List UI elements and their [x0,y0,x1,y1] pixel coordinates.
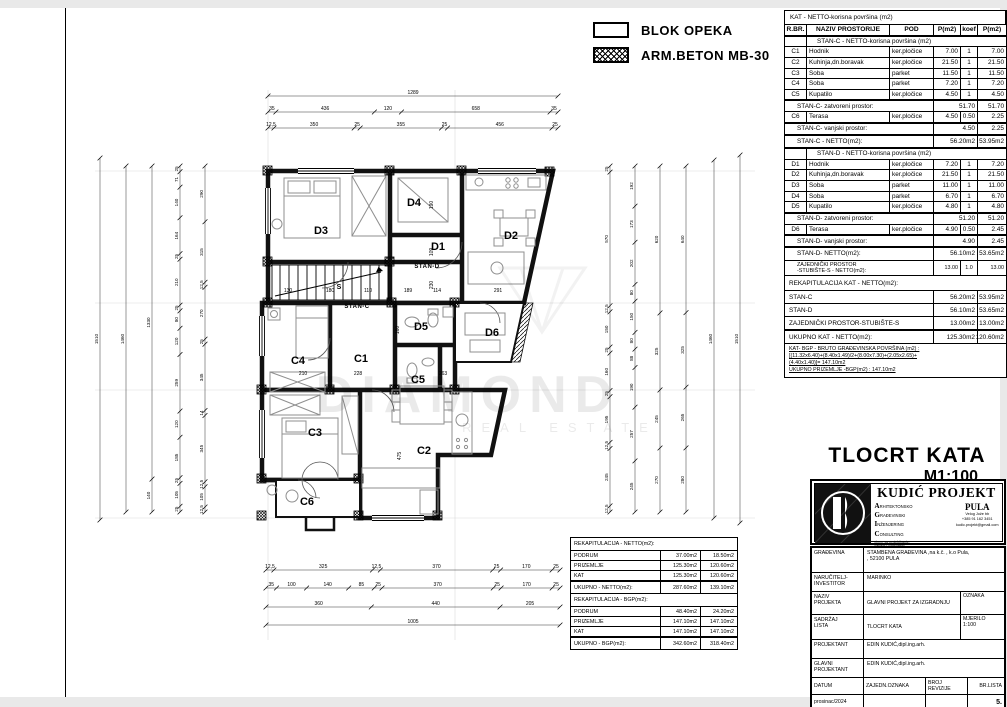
dim-value: 259 [174,379,179,387]
area-table-cell: Soba [807,69,890,80]
recap-cell: UKUPNO - NETTO(m2): [571,581,661,593]
dim-value: 440 [431,601,440,607]
field-value: STAMBENA GRAĐEVINA ,na k.č. , k.o Pula, … [864,548,1004,572]
dim-chain: 29031512,5270253451434512,510512,5 [199,164,207,515]
dim-value: 120 [174,420,179,428]
recap-cell: 147.10m2 [661,627,701,637]
dim-value: 1510 [734,333,739,344]
area-table-cell: parket [890,69,934,80]
dim-value: 210 [174,278,179,286]
dim-value: 35 [269,106,275,112]
area-table-cell: P(m2) [978,25,1006,36]
field-value: TLOCRT KATA [864,615,960,639]
area-table-cell: 13.00m2 [934,317,978,330]
title-block: GRAĐEVINA STAMBENA GRAĐEVINA ,na k.č. , … [810,546,1006,707]
area-table-cell: 53.65m2 [978,304,1006,317]
field-label: NAZIV PROJEKTA [812,592,864,614]
area-table-cell: 56.10m2 [934,247,978,261]
recap-bgp-table: REKAPITULACIJA - BGP(m2):PODRUM48.40m224… [570,593,738,650]
area-table-cell: 1 [961,69,978,80]
dim-value: 85 [359,582,365,588]
legend-item-blok-opeka: BLOK OPEKA [593,22,783,38]
area-table-cell: 21.50 [934,58,961,69]
dim-value: 1005 [407,619,418,625]
area-table-cell: Hodnik [807,160,890,171]
dim-value: 150 [629,312,634,320]
area-table-cell: 21.50 [934,170,961,181]
area-table-cell: 4.80 [978,202,1006,213]
firm-info: KUDIĆ PROJEKT ARHITEKTONSKO GRAĐEVINSKI … [871,484,1002,541]
dim-chain: 1510 [734,153,742,526]
area-table-cell: 7.00 [978,47,1006,58]
dim-value: 25 [604,166,609,172]
firm-email: kudic.projekt@gmail.com [956,523,998,529]
area-table-cell: NAZIV PROSTORIJE [807,25,890,36]
area-table-cell: Hodnik [807,47,890,58]
dim-value: 350 [310,122,319,128]
dim-value: 195 [604,415,609,423]
recap-cell: PRIZEMLJE [571,561,661,571]
area-table-cell: STAN-D- NETTO(m2): [785,247,934,261]
area-table-cell: 13.00 [934,261,961,276]
recap-cell: 318.40m2 [701,637,737,649]
area-table-cell: STAN-C [785,291,934,304]
firm-contact: PULA Velog Jože bb +385 91 162 3451 kudi… [956,502,998,549]
dim-value: 12,5 [604,304,609,313]
area-table-cell: C5 [785,90,807,101]
footer-value-lista: 5. [968,695,1004,707]
area-table-cell: D6 [785,225,807,236]
area-table-cell: POD [890,25,934,36]
dim-chain: 192173202801508088190257245 [629,164,637,515]
area-table-cell: 7.20 [978,160,1006,171]
dim-value: 25 [174,506,179,512]
recap-cell: PRIZEMLJE [571,617,661,627]
dim-chain: 1460 [708,158,716,521]
area-table-cell: 4.50 [934,123,978,135]
area-table-cell: ker.pločice [890,58,934,69]
arm-beton-swatch [593,47,629,63]
recap-tables: REKAPITULACIJA - NETTO(m2):PODRUM37.00m2… [570,537,738,649]
area-table-cell: 51.70 [934,100,978,112]
area-table-cell: 13.00m2 [978,317,1006,330]
dim-value: 25 [442,122,448,128]
dim-value: 658 [472,106,481,112]
area-table-cell: 1 [961,79,978,90]
area-table-cell: ker.pločice [890,90,934,101]
dim-value: 270 [199,309,204,317]
legend-label: ARM.BETON MB-30 [641,48,770,63]
dim-value: 25 [354,122,360,128]
area-table-cell: C4 [785,79,807,90]
area-table-cell: 1 [961,58,978,69]
dim-value: 245 [654,415,659,423]
dim-chain: 1460 [120,164,128,515]
dim-value: 1460 [120,333,125,344]
dim-value: 80 [174,317,179,323]
area-table-cell: 7.20 [978,79,1006,90]
area-table-cell: 7.20 [934,160,961,171]
area-table-cell: ker.pločice [890,202,934,213]
firm-services: ARHITEKTONSKO GRAĐEVINSKI INŽENJERING CO… [875,502,913,549]
area-table-cell: parket [890,79,934,90]
area-table-cell: 21.50 [978,58,1006,69]
dim-value: 570 [604,235,609,243]
plan-annotation: 189 [404,288,413,294]
area-table-cell: 51.20 [934,213,978,225]
recap-cell: REKAPITULACIJA - BGP(m2): [571,594,737,607]
area-table-cell: 0.50 [961,112,978,123]
footer-value-datum: prosinac/2024 [812,695,864,707]
dim-value: 25 [199,339,204,345]
area-table-cell: 53.65m2 [978,247,1006,261]
dim-value: 12,5 [199,479,204,488]
dim-chain: 2557012,5150251602519512,524512,5 [604,164,612,515]
recap-cell: 147.10m2 [701,627,737,637]
area-table-cell: 120.60m2 [978,330,1006,344]
dim-value: 25 [604,391,609,397]
recap-cell: 18.50m2 [701,551,737,561]
area-table-cell: KAT- BGP - BRUTO GRAĐEVINSKA POVRŠINA (m… [785,344,1006,376]
area-table-cell [785,36,807,47]
area-table-cell: 1 [961,47,978,58]
area-table-cell: ker.pločice [890,47,934,58]
dim-value: 1289 [407,90,418,96]
area-table-cell: 1 [961,160,978,171]
plan-annotation: 475 [397,452,403,461]
dim-value: 370 [432,564,441,570]
dim-value: 25 [494,582,500,588]
area-table-cell: 53.95m2 [978,291,1006,304]
area-table: KAT - NETTO-korisna površina (m2)R.BR.NA… [784,10,1007,378]
dim-value: 25 [494,564,500,570]
recap-cell: 48.40m2 [661,607,701,617]
dim-value: 192 [629,182,634,190]
dim-value: 25 [174,478,179,484]
dim-value: 360 [314,601,323,607]
footer-label: ZAJEDN.OZNAKA [864,678,926,694]
field-value: GLAVNI PROJEKT ZA IZGRADNJU [864,592,960,614]
dim-value: 245 [629,482,634,490]
recap-cell: 125.30m2 [661,561,701,571]
area-table-cell: 21.50 [978,170,1006,181]
dim-value: 25 [553,564,559,570]
room-label-c4: C4 [291,355,306,367]
dim-chain: 3510014085253702517025 [264,582,563,590]
recap-cell: PODRUM [571,551,661,561]
field-value: MARINKO [864,573,1004,591]
plan-annotation: 190 [429,201,435,210]
area-table-cell: 4.50 [934,112,961,123]
area-table-cell: 11.00 [934,181,961,192]
recap-netto-table: REKAPITULACIJA - NETTO(m2):PODRUM37.00m2… [570,537,738,594]
dim-value: 1460 [708,333,713,344]
area-table-cell: D5 [785,202,807,213]
dim-chain: 620325245270 [654,164,662,515]
area-table-cell: 1.0 [961,261,978,276]
dim-value: 620 [654,235,659,243]
dim-chain: 360440205 [264,601,563,609]
field-label: PROJEKTANT [812,640,864,658]
plan-annotation: 263 [439,371,448,377]
dim-value: 35 [268,582,274,588]
dim-value: 202 [629,259,634,267]
area-table-cell: Kuhinja,dn.boravak [807,170,890,181]
area-table-cell: 56.10m2 [934,304,978,317]
dim-value: 345 [199,444,204,452]
area-table-cell: C1 [785,47,807,58]
area-table-cell: ker.pločice [890,170,934,181]
area-table-cell: 56.20m2 [934,291,978,304]
area-table-cell: 4.90 [934,225,961,236]
dim-value: 355 [397,122,406,128]
dim-value: 12,5 [199,280,204,289]
area-table-cell: 4.90 [934,235,978,247]
room-label-c5: C5 [411,374,425,386]
recap-cell: 120.60m2 [701,561,737,571]
dim-value: 140 [146,491,151,499]
oznaka-cell: OZNAKA [960,592,1004,614]
area-table-cell: REKAPITULACIJA KAT - NETTO(m2): [785,276,1006,291]
dim-value: 140 [174,198,179,206]
field-value: EDIN KUDIĆ,dipl.ing.arh. [864,640,1004,658]
area-table-cell: D2 [785,170,807,181]
footer-label: BR.LISTA [968,678,1004,694]
dim-value: 456 [496,122,505,128]
recap-cell: 287.60m2 [661,581,701,593]
dim-value: 25 [174,166,179,172]
dim-value: 14 [199,410,204,416]
dim-value: 257 [629,430,634,438]
recap-cell: 24.20m2 [701,607,737,617]
dim-value: 12,5 [604,441,609,450]
area-table-cell: 1 [961,202,978,213]
area-table-cell: 125.30m2 [934,330,978,344]
area-table-cell: ker.pločice [890,160,934,171]
area-table-cell: ZAJEDNIČKI PROSTOR -STUBIŠTE-S - NETTO(m… [785,261,934,276]
legend: BLOK OPEKA ARM.BETON MB-30 [593,22,783,72]
area-table-cell: STAN-D [785,304,934,317]
dim-value: 290 [199,190,204,198]
area-table-cell: Kupatilo [807,202,890,213]
area-table-cell: 6.70 [934,192,961,203]
area-table-cell: KAT - NETTO-korisna površina (m2) [785,11,1006,25]
stan-label: STAN-D [414,264,439,270]
firm-block-inner: KUDIĆ PROJEKT ARHITEKTONSKO GRAĐEVINSKI … [814,483,1003,542]
plan-annotation: 230 [429,281,435,290]
recap-cell: KAT [571,627,661,637]
area-table-cell: STAN-D- vanjski prostor: [785,235,934,247]
dim-chain: 1289 [266,90,561,98]
area-table-cell: STAN-C - NETTO-korisna površina (m2) [807,36,1006,47]
dim-value: 170 [522,564,531,570]
area-table-cell: 2.25 [978,112,1006,123]
area-table-cell: 2.45 [978,225,1006,236]
dim-value: 35 [551,106,557,112]
dim-value: 270 [654,476,659,484]
recap-cell: 120.60m2 [701,571,737,581]
area-table-cell: C3 [785,69,807,80]
field-label: GRAĐEVINA [812,548,864,572]
legend-label: BLOK OPEKA [641,23,733,38]
area-table-cell: Soba [807,79,890,90]
dim-value: 105 [199,493,204,501]
room-label-d4: D4 [407,197,422,209]
dim-value: 25 [375,582,381,588]
area-table-cell: D3 [785,181,807,192]
area-table-cell: ker.pločice [890,225,934,236]
dim-value: 100 [287,582,296,588]
recap-cell: 342.60m2 [661,637,701,649]
plan-annotation: 110 [364,288,372,294]
dim-value: 436 [321,106,330,112]
dim-value: 205 [526,601,535,607]
area-table-cell: 7.00 [934,47,961,58]
area-table-cell: 1 [961,192,978,203]
area-table-cell: Terasa [807,225,890,236]
dim-value: 80 [629,290,634,296]
stan-label: STAN-C [344,304,369,310]
area-table-cell: 4.80 [934,202,961,213]
room-label-c2: C2 [417,445,431,457]
recap-cell: 125.30m2 [661,571,701,581]
area-table-cell: 2.45 [978,235,1006,247]
area-table-cell: STAN-D- zatvoreni prostor: [785,213,934,225]
dim-value: 170 [522,582,531,588]
firm-logo [815,484,871,541]
area-table-cell: 56.20m2 [934,135,978,149]
area-table-cell: 1 [961,90,978,101]
area-table-cell: parket [890,181,934,192]
area-table-cell: parket [890,192,934,203]
dim-chain: 1330140 [146,164,154,515]
area-table-cell: 2.25 [978,123,1006,135]
area-table-cell: P(m2) [934,25,961,36]
firm-city: PULA [956,502,998,512]
area-table-cell [785,148,807,159]
dim-value: 325 [680,346,685,354]
area-table-cell: Kuhinja,dn.boravak [807,58,890,69]
area-table-cell: STAN-D - NETTO-korisna površina (m2) [807,148,1006,159]
dim-value: 140 [323,582,332,588]
field-label: GLAVNI PROJEKTANT [812,659,864,677]
dim-chain: 12,5350253552545625 [266,122,561,130]
area-table-cell: 1 [961,170,978,181]
footer-label: BROJ REVIZIJE [926,678,968,694]
legend-item-arm-beton: ARM.BETON MB-30 [593,47,783,63]
room-label-c1: C1 [354,353,368,365]
area-table-cell: 0.50 [961,225,978,236]
area-table-cell: UKUPNO KAT - NETTO(m2): [785,330,934,344]
area-table-cell: D4 [785,192,807,203]
dim-value: 160 [604,368,609,376]
dim-value: 1330 [146,317,151,328]
dim-value: 173 [629,220,634,228]
area-table-cell: 4.50 [978,90,1006,101]
recap-cell: REKAPITULACIJA - NETTO(m2): [571,538,737,551]
area-table-cell: 11.00 [978,181,1006,192]
blok-opeka-swatch [593,22,629,38]
area-table-cell: 53.95m2 [978,135,1006,149]
dim-value: 12,5 [265,564,275,570]
dim-value: 12,5 [266,122,276,128]
area-table-cell: 7.20 [934,79,961,90]
area-table-cell: 51.20 [978,213,1006,225]
dim-value: 25 [553,582,559,588]
firm-block: KUDIĆ PROJEKT ARHITEKTONSKO GRAĐEVINSKI … [810,479,1006,545]
field-value: EDIN KUDIĆ,dipl.ing.arh. [864,659,1004,677]
dim-value: 12,5 [199,505,204,514]
plan-annotation: 210 [299,371,308,377]
dim-value: 120 [174,337,179,345]
recap-cell: UKUPNO - BGP(m2): [571,637,661,649]
plan-annotation: S [337,284,342,291]
dim-chain: 12,532512,53702517025 [264,564,563,572]
area-table-cell: 4.50 [934,90,961,101]
room-label-d5: D5 [414,321,428,333]
area-table-cell: 11.50 [978,69,1006,80]
dim-value: 640 [680,235,685,243]
dim-value: 245 [604,473,609,481]
area-table-cell: koef [961,25,978,36]
recap-cell: 147.10m2 [701,617,737,627]
room-label-c6: C6 [300,496,314,508]
dim-chain: 640325265280 [680,164,688,515]
footer-value-oznaka [864,695,926,707]
field-label: NARUČITELJ- INVESTITOR [812,573,864,591]
dim-value: 80 [629,338,634,344]
dim-value: 25 [604,347,609,353]
area-table-cell: ker.pločice [890,112,934,123]
plan-annotation: 130 [284,288,293,294]
dim-value: 150 [604,325,609,333]
area-table-cell: Soba [807,181,890,192]
dim-value: 25 [174,253,179,259]
area-table-cell: Kupatilo [807,90,890,101]
area-table-cell: 51.70 [978,100,1006,112]
area-table-cell: 13.00 [978,261,1006,276]
area-table-cell: STAN-C- zatvoreni prostor: [785,100,934,112]
recap-cell: KAT [571,571,661,581]
dim-value: 88 [629,355,634,361]
plan-annotation: 291 [494,288,503,294]
dim-chain: 1510 [94,156,102,523]
dim-value: 325 [654,347,659,355]
area-table-cell: 6.70 [978,192,1006,203]
area-table-cell: STAN-C - NETTO(m2): [785,135,934,149]
area-table-cell: Terasa [807,112,890,123]
dim-value: 265 [680,413,685,421]
plan-annotation: 160 [395,326,401,335]
recap-cell: 147.10m2 [661,617,701,627]
plan-annotation: 180 [326,288,335,294]
recap-cell: 139.10m2 [701,581,737,593]
room-label-d3: D3 [314,225,328,237]
area-table-cell: C2 [785,58,807,69]
area-table-cell: D1 [785,160,807,171]
dim-value: 25 [552,122,558,128]
firm-name: KUDIĆ PROJEKT [875,485,999,501]
area-table-cell: R.BR. [785,25,807,36]
room-label-d2: D2 [504,230,518,242]
dim-value: 120 [384,106,393,112]
area-table-cell: 1 [961,181,978,192]
dim-value: 370 [433,582,442,588]
drawing-title-text: TLOCRT KATA [808,444,1006,468]
dim-chain: 25711401642521025801202591201852510525 [174,164,182,515]
dim-value: 345 [199,373,204,381]
dim-value: 105 [174,491,179,499]
